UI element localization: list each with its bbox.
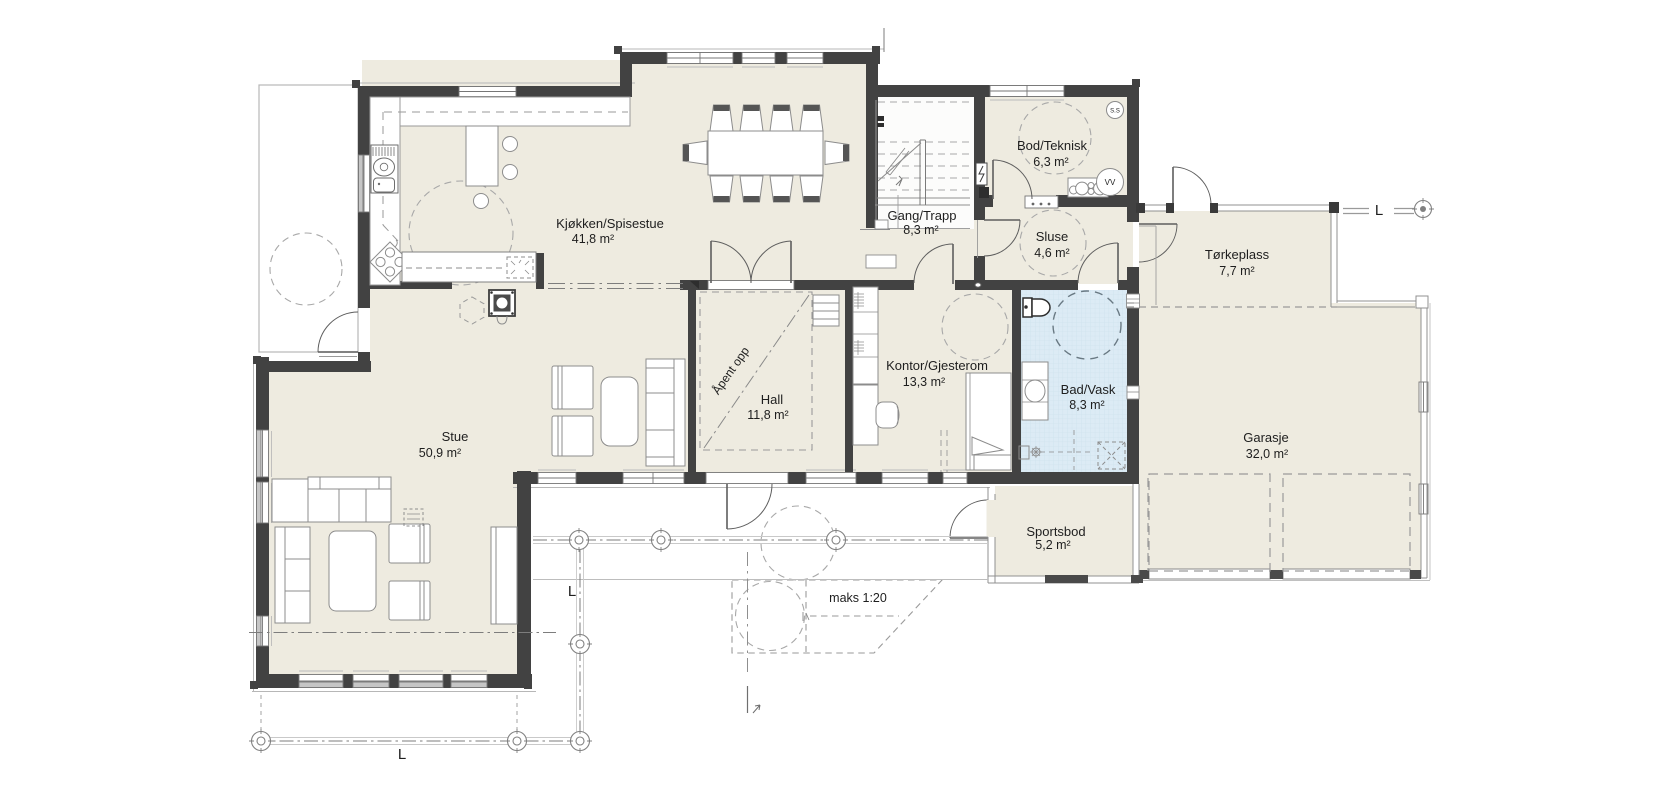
svg-text:Tørkeplass: Tørkeplass — [1205, 247, 1270, 262]
svg-text:Garasje: Garasje — [1243, 430, 1289, 445]
svg-text:32,0 m²: 32,0 m² — [1246, 447, 1288, 461]
svg-text:Bod/Teknisk: Bod/Teknisk — [1017, 138, 1088, 153]
svg-text:L: L — [398, 746, 406, 763]
svg-text:Sluse: Sluse — [1036, 229, 1069, 244]
svg-text:S.S: S.S — [1110, 109, 1120, 115]
svg-text:L: L — [1375, 202, 1383, 219]
svg-text:5,2 m²: 5,2 m² — [1035, 538, 1070, 552]
svg-text:Sportsbod: Sportsbod — [1026, 524, 1085, 539]
svg-text:50,9 m²: 50,9 m² — [419, 446, 461, 460]
svg-text:8,3 m²: 8,3 m² — [1069, 398, 1104, 412]
svg-text:4,6 m²: 4,6 m² — [1034, 246, 1069, 260]
svg-text:Kjøkken/Spisestue: Kjøkken/Spisestue — [556, 216, 664, 231]
svg-text:11,8 m²: 11,8 m² — [747, 408, 788, 422]
svg-text:Hall: Hall — [761, 392, 784, 407]
svg-text:Stue: Stue — [442, 429, 469, 444]
svg-text:Gang/Trapp: Gang/Trapp — [888, 208, 957, 223]
svg-text:maks 1:20: maks 1:20 — [829, 591, 887, 605]
svg-text:Bad/Vask: Bad/Vask — [1061, 382, 1116, 397]
svg-text:13,3 m²: 13,3 m² — [903, 375, 945, 389]
svg-text:VV: VV — [1105, 178, 1116, 187]
svg-text:7,7 m²: 7,7 m² — [1219, 264, 1254, 278]
svg-text:L: L — [568, 583, 576, 600]
svg-text:Kontor/Gjesterom: Kontor/Gjesterom — [886, 358, 988, 373]
svg-text:41,8 m²: 41,8 m² — [572, 232, 614, 246]
svg-text:8,3 m²: 8,3 m² — [903, 223, 938, 237]
svg-text:6,3 m²: 6,3 m² — [1033, 155, 1068, 169]
